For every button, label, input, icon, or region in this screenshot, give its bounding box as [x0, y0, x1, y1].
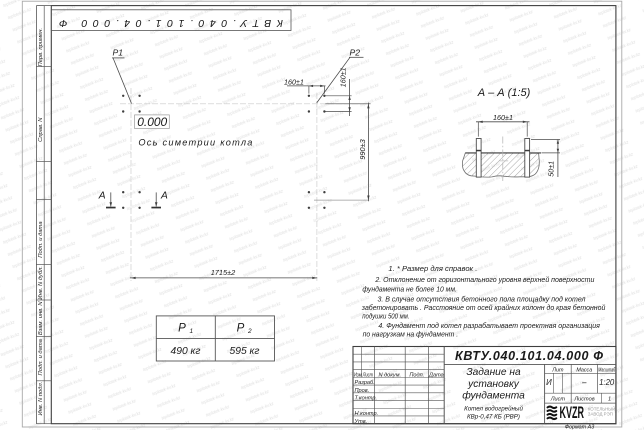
svg-text:Перв. примен.: Перв. примен.	[38, 28, 44, 67]
svg-text:фундамента не более 10 мм.: фундамента не более 10 мм.	[362, 284, 457, 293]
svg-text:забетонировать . Расстояние от: забетонировать . Расстояние от осей край…	[361, 303, 605, 312]
svg-text:Котел водогрейный: Котел водогрейный	[464, 406, 523, 413]
svg-text:P1: P1	[113, 48, 124, 58]
svg-text:Подп. и дата: Подп. и дата	[38, 338, 44, 375]
svg-text:Масштаб: Масштаб	[598, 367, 616, 373]
svg-text:2. Отклонение от горизонтально: 2. Отклонение от горизонтального уровня …	[374, 275, 594, 284]
svg-text:Н.контр.: Н.контр.	[355, 411, 379, 417]
svg-text:490 кг: 490 кг	[171, 346, 201, 357]
svg-text:Подп. и дата: Подп. и дата	[38, 221, 44, 258]
svg-text:KVZR: KVZR	[560, 404, 585, 422]
svg-text:1: 1	[190, 328, 194, 335]
svg-text:160±1: 160±1	[493, 113, 513, 122]
svg-text:1. * Размер для справок .: 1. * Размер для справок .	[388, 264, 477, 273]
svg-text:Т.контр.: Т.контр.	[355, 396, 378, 402]
svg-text:А: А	[98, 191, 106, 202]
svg-text:Листов: Листов	[573, 396, 594, 402]
svg-text:1: 1	[608, 396, 611, 402]
svg-text:50±1: 50±1	[546, 161, 555, 177]
svg-text:Лист: Лист	[550, 396, 566, 402]
svg-text:595 кг: 595 кг	[230, 346, 260, 357]
svg-text:Лит: Лит	[551, 367, 564, 373]
svg-text:Утв.: Утв.	[354, 419, 368, 425]
svg-text:2: 2	[247, 328, 252, 335]
svg-text:Инв. N дубл.: Инв. N дубл.	[38, 266, 44, 300]
svg-text:Ось симетрии котла: Ось симетрии котла	[138, 137, 252, 147]
svg-text:фундамента: фундамента	[462, 390, 525, 402]
svg-text:Изм.Лист: Изм.Лист	[354, 372, 373, 378]
svg-text:Пров.: Пров.	[355, 388, 370, 394]
svg-text:160±1: 160±1	[338, 67, 347, 87]
svg-text:КВр-0,47 КБ (РВР): КВр-0,47 КБ (РВР)	[467, 413, 520, 420]
svg-text:160±1: 160±1	[284, 77, 304, 86]
svg-text:990±3: 990±3	[358, 138, 367, 159]
svg-text:P: P	[237, 323, 245, 335]
svg-text:Формат А3: Формат А3	[565, 424, 595, 430]
svg-text:–: –	[581, 378, 587, 387]
svg-text:1715±2: 1715±2	[211, 268, 236, 277]
svg-text:Подп.: Подп.	[409, 372, 424, 378]
svg-text:Взам. инв. N: Взам. инв. N	[38, 301, 44, 336]
svg-text:И: И	[546, 378, 552, 387]
svg-text:Разраб.: Разраб.	[355, 380, 375, 386]
svg-text:А: А	[160, 191, 168, 202]
svg-text:1:20: 1:20	[599, 378, 615, 387]
svg-text:установку: установку	[467, 379, 520, 390]
svg-text:А – А (1:5): А – А (1:5)	[477, 87, 531, 99]
svg-text:ЗАВОД РЭП: ЗАВОД РЭП	[588, 412, 613, 417]
svg-text:Справ. N: Справ. N	[38, 117, 44, 142]
svg-text:Задание на: Задание на	[466, 367, 521, 378]
svg-text:0.000: 0.000	[137, 115, 167, 129]
svg-text:P: P	[178, 323, 186, 335]
svg-text:Дата: Дата	[428, 372, 444, 378]
svg-text:КВТУ.040.101.04.000 Ф: КВТУ.040.101.04.000 Ф	[455, 349, 603, 363]
svg-text:по нагрузкам на фундамент .: по нагрузкам на фундамент .	[363, 329, 459, 338]
svg-text:подушки 500 мм.: подушки 500 мм.	[362, 312, 409, 321]
svg-text:N докум.: N докум.	[378, 372, 401, 378]
svg-text:Масса: Масса	[576, 367, 592, 373]
svg-text:Инв. N подл.: Инв. N подл.	[38, 382, 44, 416]
svg-text:P2: P2	[350, 48, 361, 58]
